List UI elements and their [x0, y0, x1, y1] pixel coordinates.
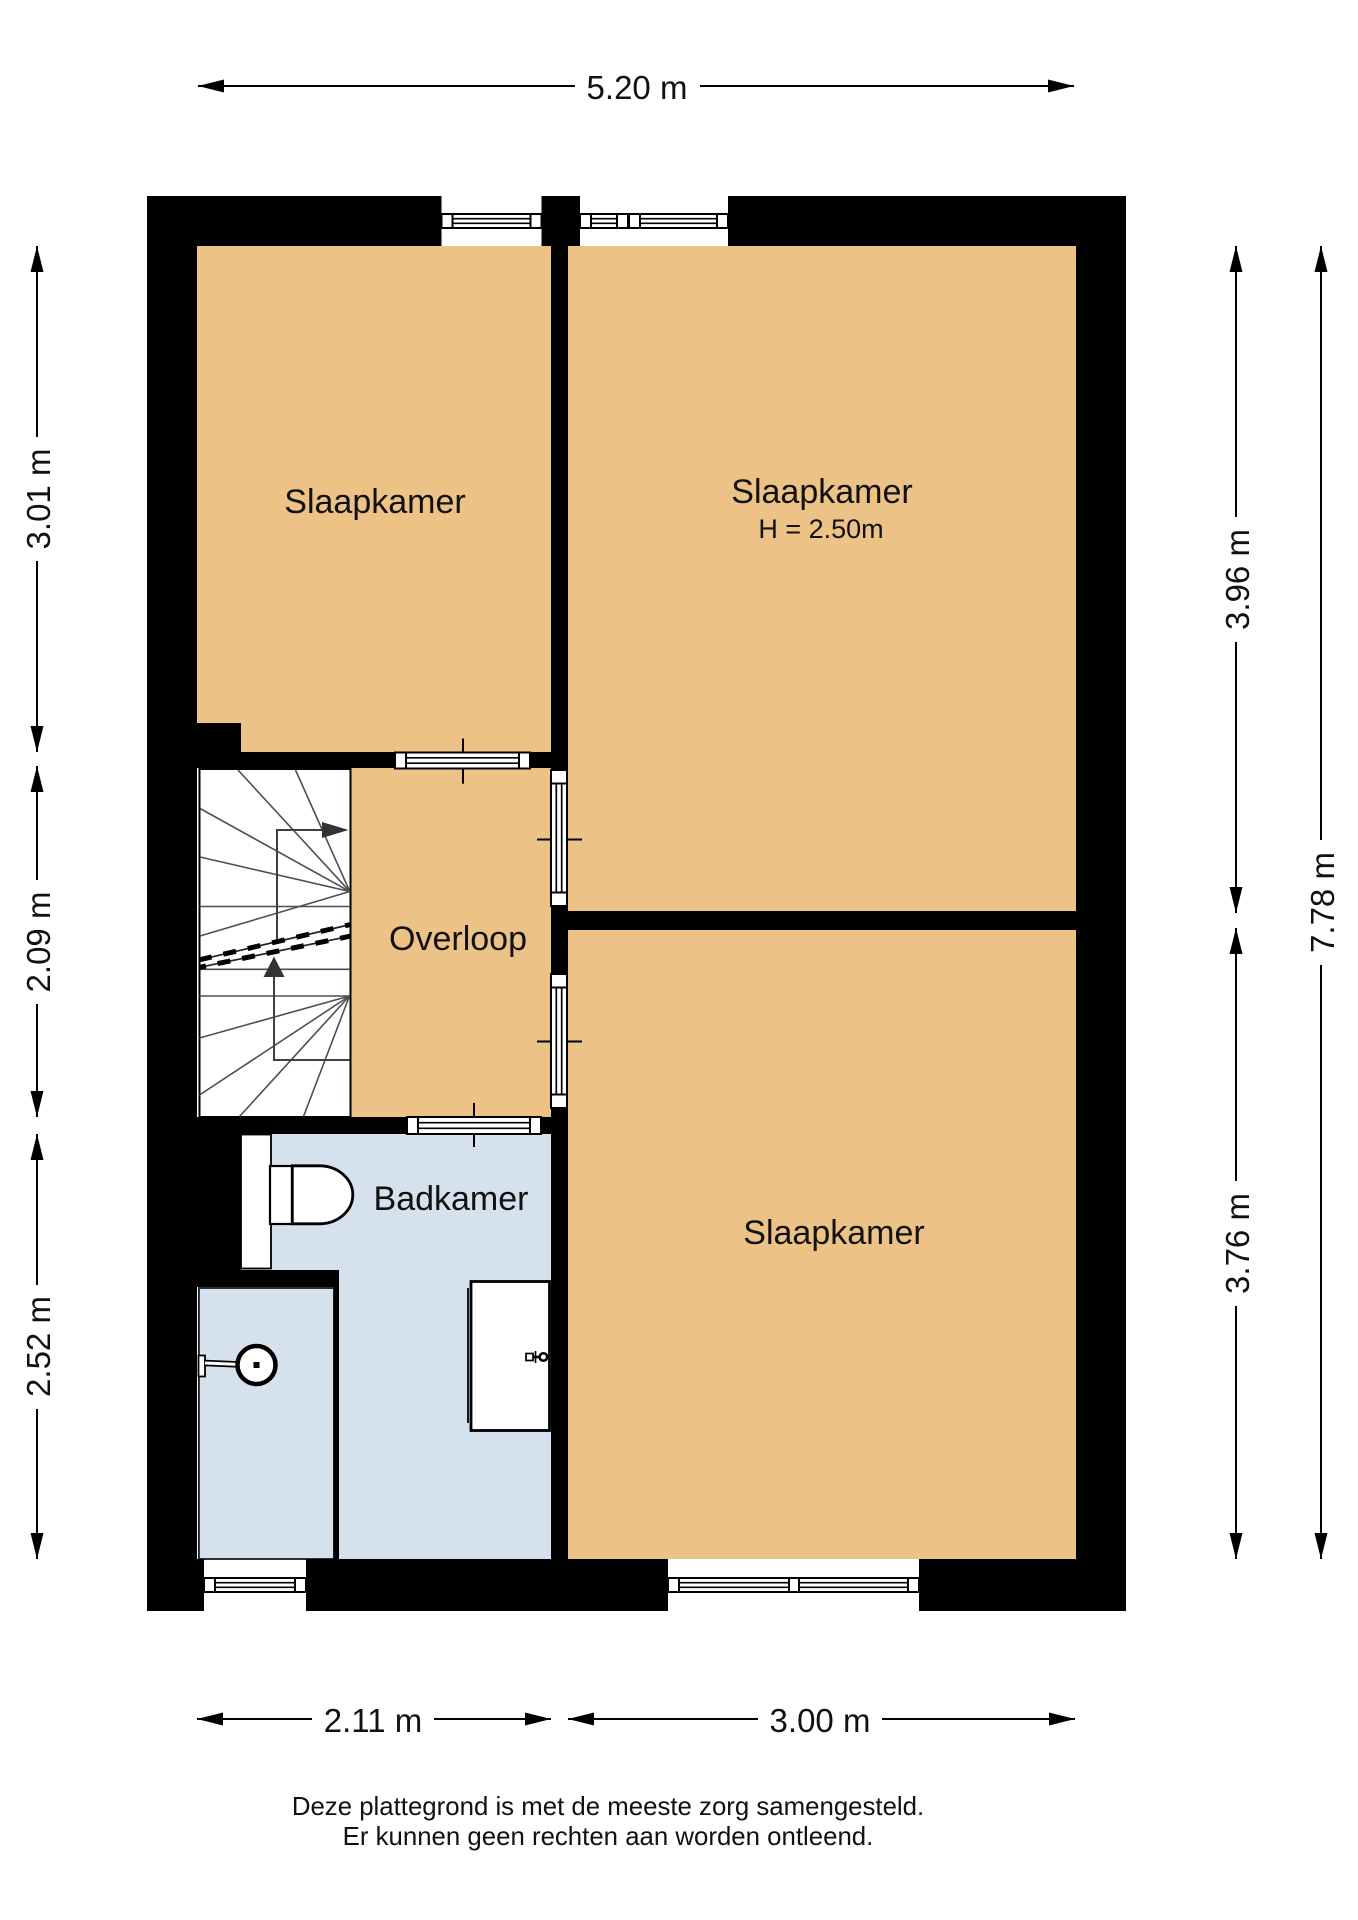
svg-text:2.09 m: 2.09 m: [20, 892, 57, 993]
svg-text:3.76 m: 3.76 m: [1219, 1193, 1256, 1294]
svg-text:7.78 m: 7.78 m: [1304, 852, 1341, 953]
svg-text:Badkamer: Badkamer: [374, 1180, 529, 1218]
svg-text:3.01 m: 3.01 m: [20, 449, 57, 550]
svg-text:Overloop: Overloop: [389, 920, 527, 958]
svg-text:Deze plattegrond is met de mee: Deze plattegrond is met de meeste zorg s…: [292, 1793, 924, 1821]
svg-text:Er kunnen geen rechten aan wor: Er kunnen geen rechten aan worden ontlee…: [343, 1823, 874, 1851]
svg-text:Slaapkamer: Slaapkamer: [731, 473, 912, 511]
svg-text:Slaapkamer: Slaapkamer: [743, 1214, 924, 1252]
svg-text:2.11 m: 2.11 m: [324, 1702, 422, 1739]
svg-text:H = 2.50m: H = 2.50m: [758, 514, 883, 544]
svg-text:3.00 m: 3.00 m: [770, 1702, 871, 1739]
svg-text:3.96 m: 3.96 m: [1219, 529, 1256, 630]
svg-text:Slaapkamer: Slaapkamer: [284, 483, 465, 521]
svg-text:2.52 m: 2.52 m: [20, 1296, 57, 1397]
svg-text:5.20 m: 5.20 m: [587, 69, 688, 106]
